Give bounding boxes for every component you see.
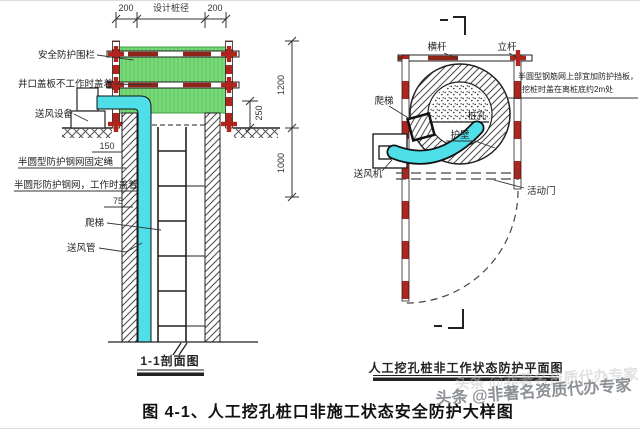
- top-dimension: [112, 12, 230, 28]
- label-blower: 送风机: [354, 168, 383, 180]
- movable-door: [396, 173, 519, 303]
- section-caption: 1-1剖面图: [140, 353, 199, 368]
- diagram-svg: 200 设计桩径 200: [0, 1, 640, 428]
- figure-canvas: 200 设计桩径 200: [0, 0, 640, 429]
- section-caption-bar: [137, 373, 204, 377]
- dim-200-right: 200: [207, 3, 222, 13]
- label-air-duct: 送风管: [67, 242, 96, 254]
- dim-1000: 1000: [276, 153, 286, 173]
- label-horizontal-bar: 横杆: [427, 41, 447, 53]
- label-safety-fence: 安全防护围栏: [38, 49, 96, 61]
- note-line2: 挖桩时盖在离桩底约2m处: [522, 84, 613, 94]
- label-lining: 护壁: [450, 129, 470, 141]
- dim-250: 250: [254, 105, 264, 120]
- label-vertical-pole: 立杆: [497, 41, 517, 53]
- plan-ladder-square: [408, 114, 435, 141]
- label-movable-door: 活动门: [527, 185, 556, 197]
- ground-line: [62, 128, 280, 138]
- dim-150: 150: [99, 141, 114, 151]
- pile-walls: [122, 113, 220, 342]
- label-net-rope: 半圆型防护钢网固定绳: [18, 156, 114, 168]
- dim-1200: 1200: [276, 75, 286, 95]
- note-line1: 半圆型钢筋网上部宜加防护挡板，: [518, 71, 638, 81]
- plan-view: 横杆 立杆 爬梯 桩孔 护壁 送风机 活动门 半圆型钢筋网上部宜加防护挡板， 挖…: [354, 17, 638, 381]
- label-ladder: 爬梯: [85, 217, 105, 229]
- dim-75: 75: [113, 196, 123, 206]
- section-view: 200 设计桩径 200: [14, 2, 299, 376]
- shaft-ladder: [152, 125, 205, 342]
- section-mark-bottom: [434, 309, 463, 328]
- dim-200-left: 200: [118, 3, 133, 13]
- section-mark-top: [440, 17, 465, 35]
- dim-design-diameter: 设计桩径: [153, 2, 189, 13]
- right-dimension: [285, 37, 299, 201]
- label-air-supply: 送风设备: [35, 108, 74, 120]
- label-wellhead-cover: 井口盖板不工作时盖着: [18, 78, 113, 90]
- label-plan-ladder: 爬梯: [374, 95, 394, 107]
- label-pile-hole: 桩孔: [467, 110, 487, 122]
- label-net-cover: 半圆形防护钢网，工作时盖着: [14, 179, 138, 191]
